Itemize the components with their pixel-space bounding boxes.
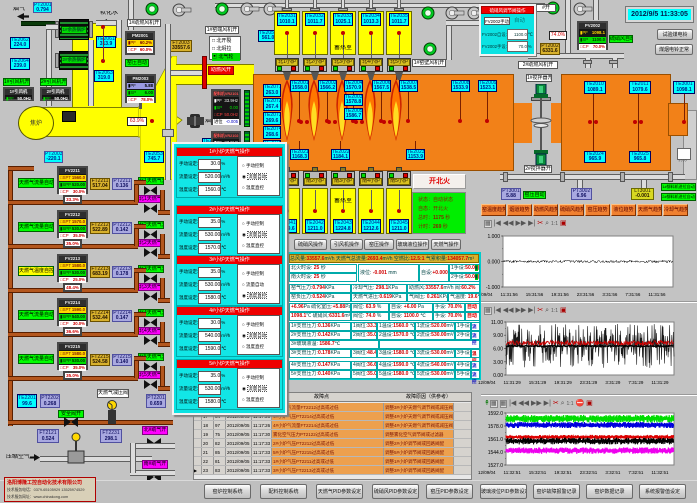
svg-text:0.00: 0.00: [493, 373, 503, 379]
svg-text:1.000: 1.000: [487, 234, 500, 240]
svg-text:1527.0: 1527.0: [488, 463, 504, 469]
svg-text:1561.0: 1561.0: [488, 437, 504, 443]
svg-text:9.00: 9.00: [493, 333, 503, 339]
svg-text:-1.000: -1.000: [486, 285, 500, 291]
svg-text:11.00: 11.00: [491, 320, 503, 326]
svg-text:1578.0: 1578.0: [488, 424, 504, 430]
svg-text:1592.0: 1592.0: [488, 411, 504, 417]
svg-text:6.00: 6.00: [493, 347, 503, 353]
svg-text:0.000: 0.000: [487, 260, 500, 266]
svg-text:1544.0: 1544.0: [488, 450, 504, 456]
svg-text:3.00: 3.00: [493, 360, 503, 366]
